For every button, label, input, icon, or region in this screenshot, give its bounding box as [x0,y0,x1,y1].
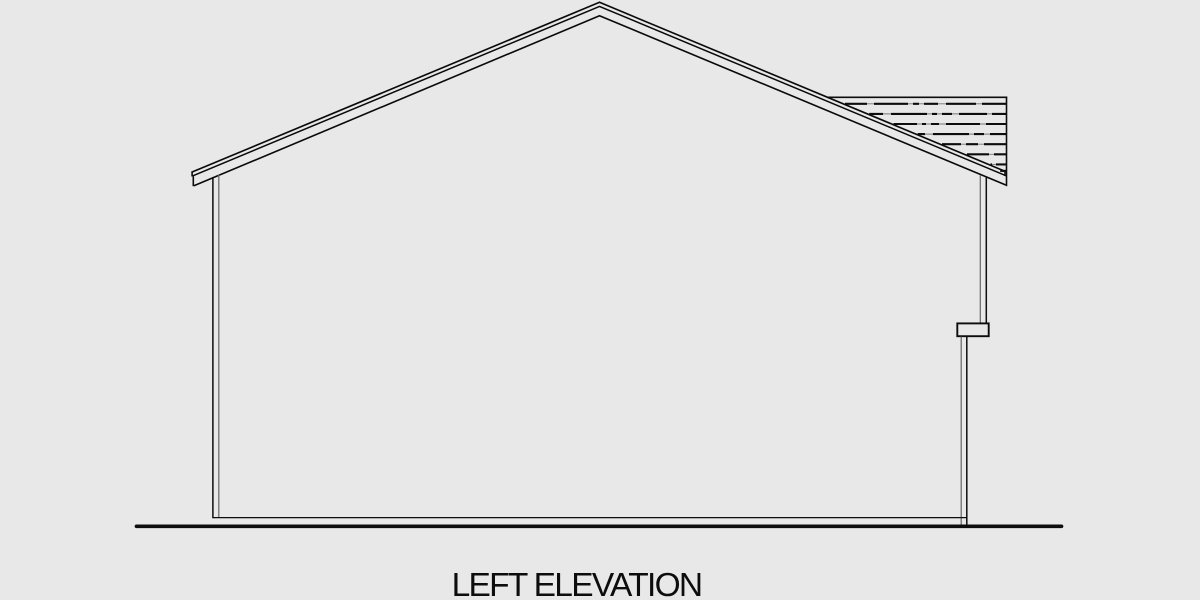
svg-text:LEFT ELEVATION: LEFT ELEVATION [452,567,702,600]
